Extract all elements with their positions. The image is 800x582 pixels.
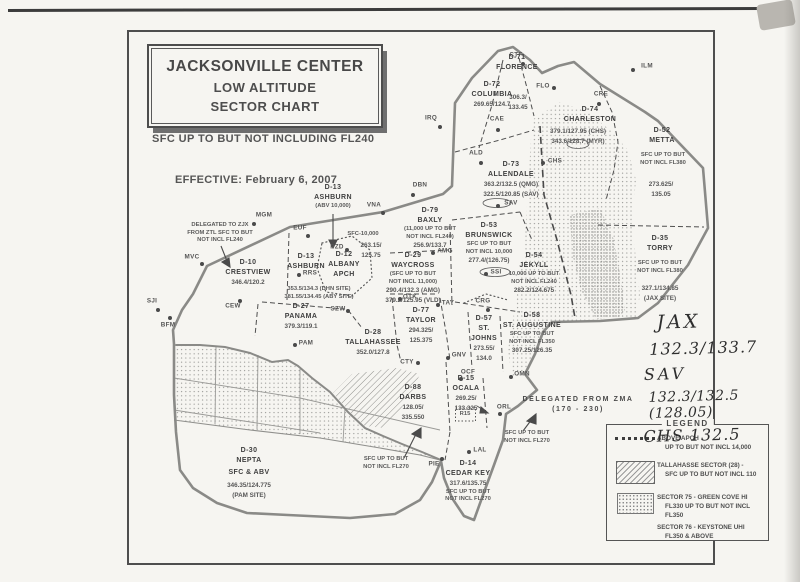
handwritten-line: 132.3/132.5 (128.05)	[648, 386, 799, 422]
label-d77-taylor: D-77TAYLOR294.325/125.375	[406, 306, 436, 345]
title-box: JACKSONVILLE CENTER LOW ALTITUDE SECTOR …	[147, 44, 383, 128]
fix-label-dbn: DBN	[413, 182, 428, 189]
fix-dot-bfm	[168, 316, 172, 320]
label-d14-cedar-key: D-14CEDAR KEY317.6/135.75SFC UP TO BUTNO…	[445, 459, 491, 504]
chart-title-line1: JACKSONVILLE CENTER	[152, 58, 378, 76]
fix-label-ssi: SSI	[490, 269, 501, 276]
fix-dot-rrs	[297, 273, 301, 277]
title-box-inner-border: JACKSONVILLE CENTER LOW ALTITUDE SECTOR …	[151, 48, 379, 124]
hatch-swatch	[616, 461, 655, 484]
fix-dot-pam	[293, 343, 297, 347]
fix-dot-euf	[306, 234, 310, 238]
legend-text: SECTOR 76 - KEYSTONE UHI	[657, 523, 764, 532]
fix-dot-ssi	[484, 272, 488, 276]
fix-dot-cre	[597, 102, 601, 106]
label-d12-albany: D-12ALBANYAPCH	[328, 250, 360, 280]
fix-label-euf: EUF	[293, 225, 307, 232]
label-d35-alt: SFC UP TO BUTNOT INCL FL380	[637, 260, 683, 275]
label-fl270-west: SFC UP TO BUTNOT INCL FL270	[363, 456, 409, 471]
label-d72-columbia: D-72COLUMBIA269.65/124.7	[472, 80, 513, 110]
fix-label-ilm: ILM	[641, 63, 653, 70]
fix-label-pzd: PZD	[330, 244, 344, 251]
fix-dot-mvc	[200, 262, 204, 266]
label-d52-metta: D-52METTA	[649, 126, 675, 146]
fix-dot-sav	[496, 204, 500, 208]
fix-label-sji: SJI	[147, 298, 157, 305]
fix-label-ctf: CTF	[509, 52, 522, 59]
fix-dot-ocf	[459, 377, 463, 381]
fix-label-mvc: MVC	[185, 254, 200, 261]
fix-label-chs: CHS	[548, 158, 562, 165]
label-d12-freq: 263.15/125.75	[360, 241, 381, 260]
label-d28-tallahassee: D-28TALLAHASSEE352.0/127.8	[345, 328, 401, 358]
fix-dot-cty	[416, 361, 420, 365]
label-zma-note: DELEGATED FROM ZMA(170 - 230)	[522, 395, 633, 414]
fix-dot-irq	[438, 125, 442, 129]
label-d74-charleston: D-74CHARLESTON	[564, 105, 616, 125]
fix-dot-tay	[436, 303, 440, 307]
label-d30-freq: 346.35/124.775(PAM SITE)	[227, 481, 271, 500]
fix-dot-amg	[431, 251, 435, 255]
label-fl270-east: SFC UP TO BUTNOT INCL FL270	[504, 430, 550, 445]
fix-label-flo: FLO	[536, 83, 550, 90]
label-d58-st-augustine: D-58ST. AUGUSTINESFC UP TO BUTNOT INCL F…	[503, 311, 561, 356]
fix-dot-ctf	[521, 62, 525, 66]
label-d73-allendale: D-73ALLENDALE363.2/132.5 (QMG)322.5/120.…	[483, 160, 538, 199]
fix-dot-orl	[498, 412, 502, 416]
label-albany-sfc: SFC-10,000	[347, 231, 378, 239]
fix-label-pie: PIE	[428, 461, 439, 468]
label-d79-baxly: D-79BAXLY(11,000 UP TO BUTNOT INCL FL240…	[404, 206, 456, 251]
label-d57-st-johns: D-57ST.JOHNS273.55/134.0	[471, 314, 497, 363]
fix-label-sav: SAV	[504, 200, 517, 207]
fix-dot-chs	[541, 161, 545, 165]
fix-dot-cae	[496, 128, 500, 132]
fix-dot-vna	[381, 211, 385, 215]
label-d52-alt: SFC UP TO BUTNOT INCL FL380	[640, 152, 686, 167]
fix-label-ald: ALD	[469, 150, 483, 157]
fix-dot-crg	[486, 308, 490, 312]
fix-label-mgm: MGM	[256, 212, 272, 219]
fix-dot-lal	[467, 450, 471, 454]
fix-dot-gnv	[446, 356, 450, 360]
fix-label-cae: CAE	[490, 116, 504, 123]
fix-label-amg: AMG	[437, 248, 453, 255]
fix-dot-omn	[509, 375, 513, 379]
fix-dot-sji	[156, 308, 160, 312]
legend-text: FL350 & ABOVE	[665, 532, 764, 541]
fix-label-pam: PAM	[299, 340, 313, 347]
fix-dot-ald	[479, 161, 483, 165]
legend-text: SFC UP TO BUT NOT INCL 110	[665, 470, 756, 479]
fix-dot-otk	[398, 297, 402, 301]
label-d35-freq: 327.1/134.85(JAX SITE)	[642, 284, 679, 303]
handwritten-line: SAV	[644, 361, 798, 384]
label-d13-freq: 353.5/134.3 (DHN SITE)381.55/134.45 (ABY…	[284, 286, 353, 301]
fix-dot-pie	[440, 457, 444, 461]
label-d88-darbs: D-88DARBS128.05/335.550	[400, 383, 427, 422]
fix-label-crg: CRG	[476, 298, 491, 305]
fix-dot-dbn	[411, 193, 415, 197]
fix-label-gnv: GNV	[452, 352, 467, 359]
label-d30-alt: SFC & ABV	[228, 468, 269, 478]
label-d52-freq: 273.625/135.05	[649, 180, 674, 199]
label-d74-freq: 379.1/127.95 (CHS)343.6/128.7 (MYR)	[550, 127, 606, 146]
chart-title-line3: SECTOR CHART	[152, 99, 378, 114]
label-d53-brunswick: D-53BRUNSWICKSFC UP TO BUTNOT INCL 10,00…	[465, 221, 512, 266]
legend-text: FL330 UP TO BUT NOT INCL FL350	[665, 502, 764, 520]
label-d54-jekyll: D-54JEKYLL10,000 UP TO BUTNOT INCL FL240…	[509, 251, 559, 296]
fix-label-ocf: OCF	[461, 369, 475, 376]
stipple-swatch	[617, 493, 654, 514]
label-d15-ocala: D-15OCALA269.25/133.325	[453, 374, 480, 413]
legend-text: TALLAHASSE SECTOR (28) -	[657, 461, 756, 470]
handwritten-line: JAX	[656, 308, 797, 334]
fix-label-cew: CEW	[225, 303, 241, 310]
legend-text: SECTOR 75 - GREEN COVE HI	[657, 493, 764, 502]
fix-dot-mgm	[252, 222, 256, 226]
legend-item-sectors-75-76: SECTOR 75 - GREEN COVE HI FL330 UP TO BU…	[613, 493, 764, 541]
fix-label-cre: CRE	[594, 91, 608, 98]
fix-label-bfm: BFM	[161, 322, 176, 329]
fix-dot-flo	[552, 86, 556, 90]
scanned-sector-chart-page: JACKSONVILLE CENTER LOW ALTITUDE SECTOR …	[0, 0, 800, 582]
label-r15: R15	[460, 411, 471, 419]
fix-label-szw: SZW	[331, 306, 346, 313]
fix-dot-szw	[346, 309, 350, 313]
fix-label-otk: OTK	[403, 294, 417, 301]
fix-label-irq: IRQ	[425, 115, 437, 122]
handwritten-notes: JAX 132.3/133.7 SAV 132.3/132.5 (128.05)…	[640, 308, 799, 446]
label-ztl-note: DELEGATED TO ZJXFROM ZTL SFC TO BUTNOT I…	[187, 222, 252, 245]
handwritten-line: 132.3/133.7	[649, 336, 797, 359]
fix-label-lal: LAL	[473, 447, 486, 454]
label-d10-crestview: D-10CRESTVIEW346.4/120.2	[225, 258, 270, 288]
fix-label-orl: ORL	[497, 404, 511, 411]
legend-item-tallahassee: TALLAHASSE SECTOR (28) - SFC UP TO BUT N…	[613, 461, 764, 484]
fix-dot-ilm	[631, 68, 635, 72]
label-d27-panama: D-27PANAMA379.3/119.1	[285, 302, 318, 332]
chart-title-line2: LOW ALTITUDE	[152, 80, 378, 95]
altitude-subtitle: SFC UP TO BUT NOT INCLUDING FL240	[152, 133, 374, 145]
fix-label-vna: VNA	[367, 202, 381, 209]
effective-date: EFFECTIVE: February 6, 2007	[175, 174, 337, 186]
fix-label-cty: CTY	[400, 359, 414, 366]
fix-label-omn: OMN	[514, 371, 530, 378]
fix-label-tay: TAY	[442, 300, 454, 307]
fix-label-rrs: RRS	[303, 270, 317, 277]
handwritten-line: CHS 132.5	[643, 423, 799, 446]
label-d35-torry: D-35TORRY	[647, 234, 673, 254]
fix-dot-pzd	[345, 248, 349, 252]
label-d30-nepta: D-30NEPTA	[236, 446, 261, 466]
label-d13-ashburn-abv: D-13ASHBURN(ABV 10,000)	[314, 183, 352, 211]
